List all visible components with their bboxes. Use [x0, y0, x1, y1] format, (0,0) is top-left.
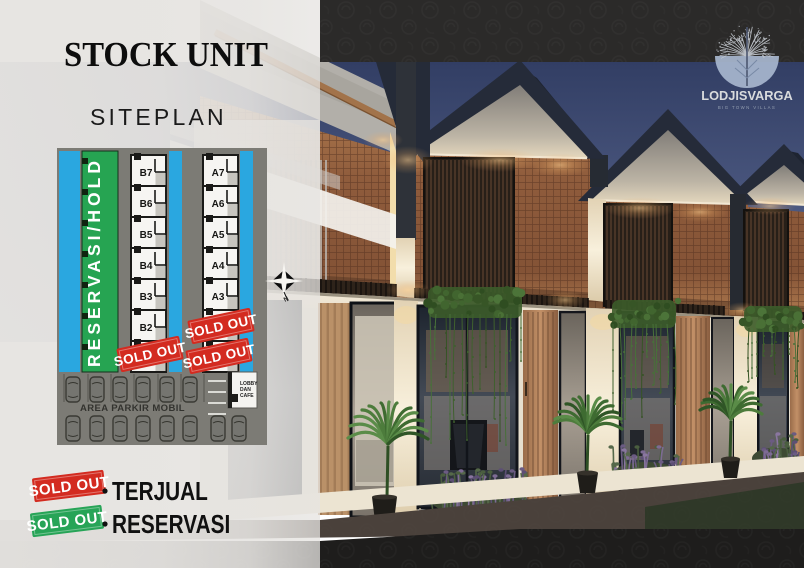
svg-text:TERJUAL: TERJUAL — [112, 477, 208, 506]
svg-text:A7: A7 — [212, 168, 225, 179]
svg-text:A6: A6 — [212, 199, 225, 210]
svg-text:B5: B5 — [140, 230, 153, 241]
svg-text:A3: A3 — [212, 292, 225, 303]
svg-text:B3: B3 — [140, 292, 153, 303]
svg-text:A4: A4 — [212, 261, 225, 272]
svg-text:AREA PARKIR MOBIL: AREA PARKIR MOBIL — [80, 403, 185, 414]
svg-text:A5: A5 — [212, 230, 225, 241]
svg-text:B2: B2 — [140, 323, 153, 334]
svg-text:RESERVASI: RESERVASI — [112, 510, 230, 539]
svg-text:CAFE: CAFE — [240, 393, 254, 399]
svg-text:LODJISVARGA: LODJISVARGA — [701, 88, 792, 103]
svg-text:BIG TOWN VILLAS: BIG TOWN VILLAS — [718, 105, 776, 110]
svg-text:B7: B7 — [140, 168, 153, 179]
svg-text:B4: B4 — [140, 261, 153, 272]
svg-text:STOCK UNIT: STOCK UNIT — [64, 36, 268, 74]
svg-text:B6: B6 — [140, 199, 153, 210]
svg-text:SITEPLAN: SITEPLAN — [90, 104, 227, 130]
svg-text:RESERVASI/HOLD: RESERVASI/HOLD — [84, 157, 104, 367]
